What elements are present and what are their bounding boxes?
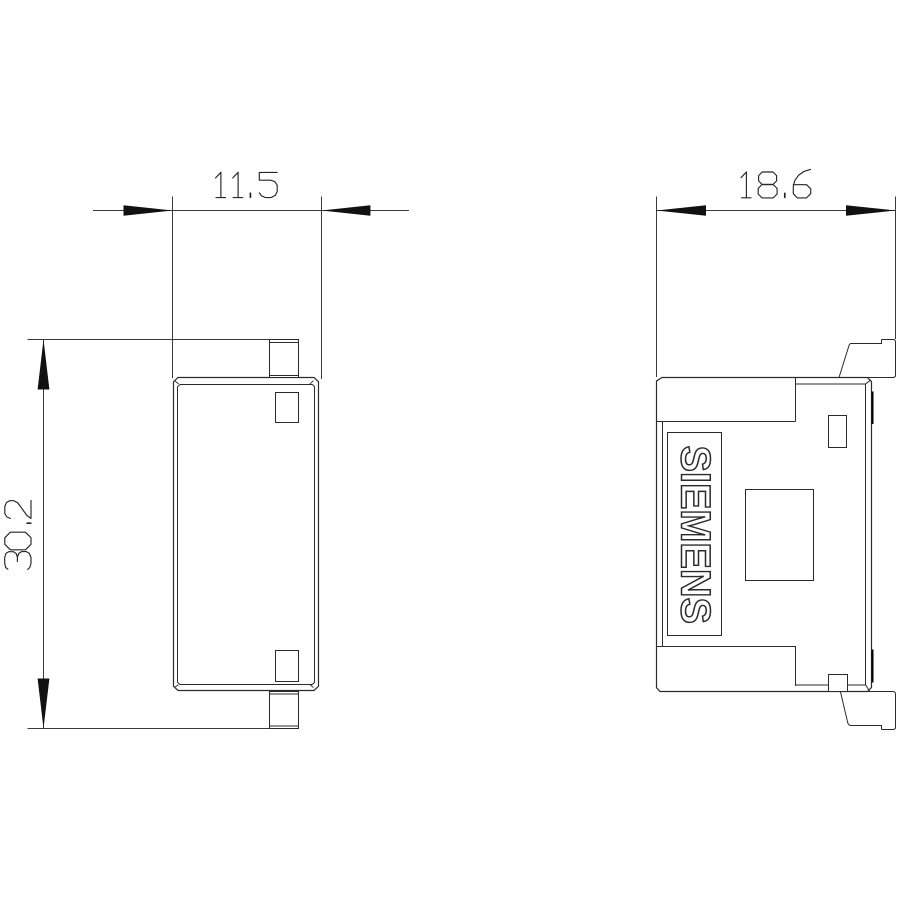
svg-text:SIEMENS: SIEMENS xyxy=(672,445,719,623)
